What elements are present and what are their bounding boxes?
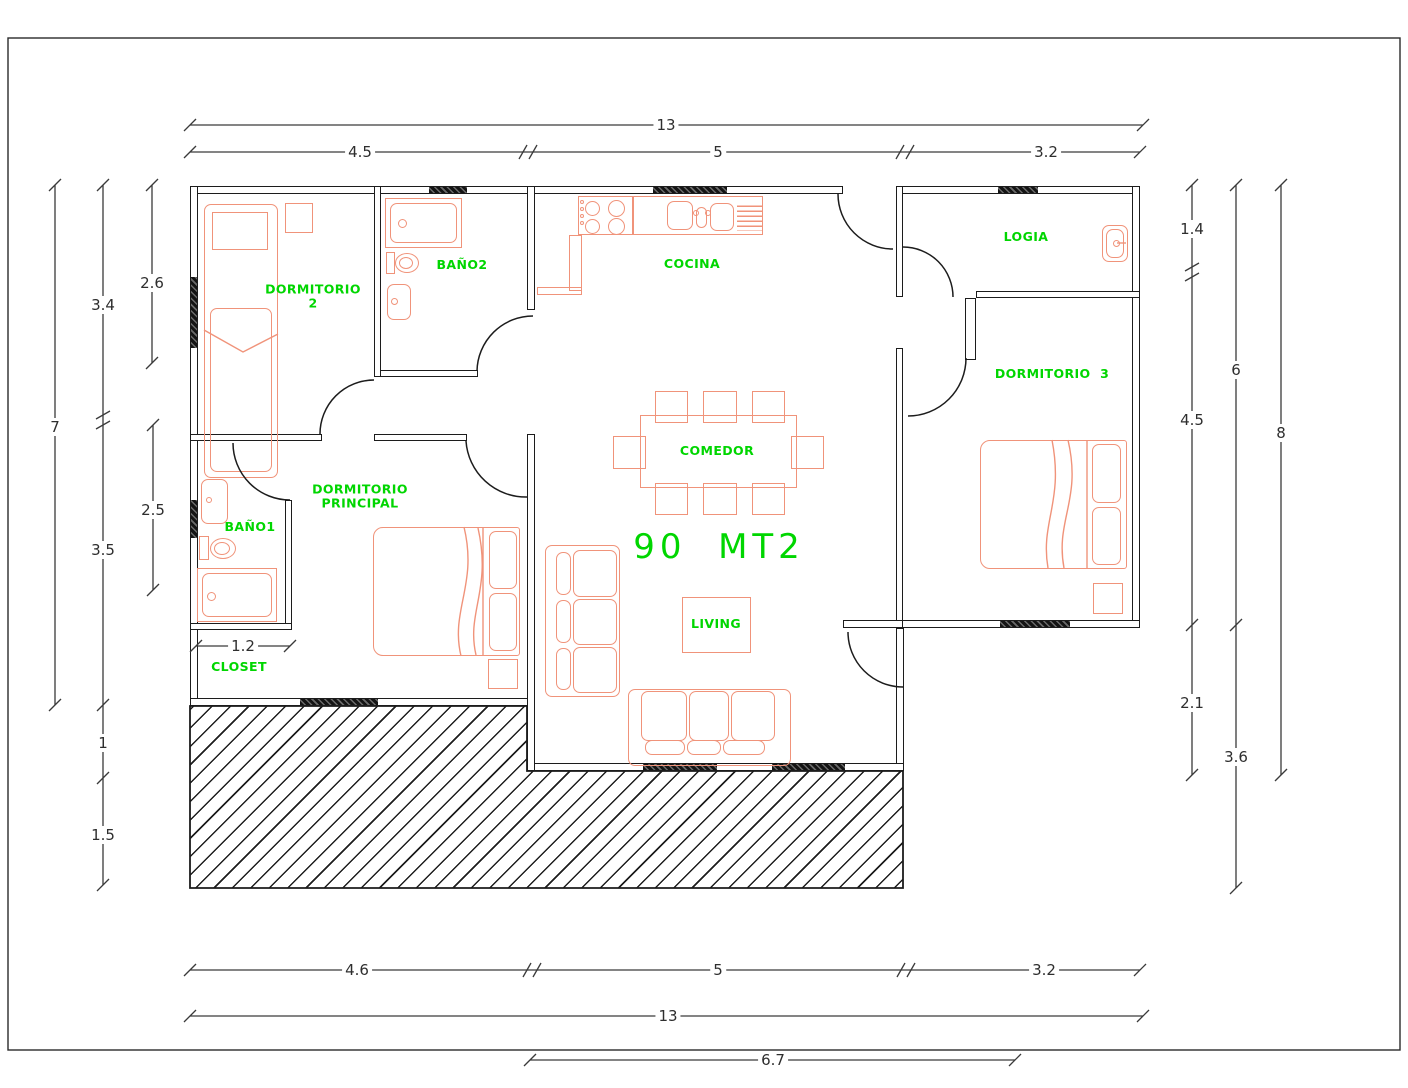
bed-dorm3-pillow-1: [1092, 444, 1121, 503]
heater-logia-knob: [1113, 240, 1120, 247]
dimline-right-inner-break-0a: [1185, 273, 1199, 281]
bed-principal-pillow-2: [489, 593, 517, 651]
dimline-right-inner-tick-2: [1186, 769, 1198, 781]
wall-living-top-stub: [843, 620, 903, 628]
bano1-cabinet-knob: [206, 497, 212, 503]
dormp-line1: DORMITORIO: [312, 482, 408, 497]
dimline-closet-tick-1: [284, 640, 296, 652]
wall-kitchen-left: [527, 186, 535, 310]
dormitorio-2-line1: DORMITORIO: [265, 282, 361, 297]
kitchen-sink-basin-1: [667, 201, 693, 230]
dimline-top-segments-tick-0: [184, 146, 196, 158]
sofa-h-seat-3: [723, 740, 765, 755]
window-top-kitchen: [653, 187, 727, 193]
dining-chair-top-3: [752, 391, 785, 423]
wall-right: [1132, 186, 1140, 628]
dimline-left-segments-break-0b: [96, 411, 110, 419]
dim-bottom-a: 4.6: [342, 961, 372, 979]
dimline-top-segments-break-1a: [896, 145, 904, 159]
dining-chair-bottom-1: [655, 483, 688, 515]
dim-right-c: 2.1: [1177, 694, 1207, 712]
dimline-bottom-segments-break-0a: [523, 963, 531, 977]
dining-chair-top-1: [655, 391, 688, 423]
sofa-v-cushion-3: [573, 647, 617, 693]
dimline-bottom-total-tick-0: [184, 1010, 196, 1022]
dim-bottom-c: 3.2: [1029, 961, 1059, 979]
sofa-v-cushion-1: [573, 550, 617, 597]
dim-right-e: 3.6: [1221, 748, 1251, 766]
dimline-left-total-tick-1: [49, 699, 61, 711]
dim-bottom-porch: 6.7: [758, 1051, 788, 1069]
stove-knob-3: [580, 214, 584, 218]
bed-dorm3-pillow-2: [1092, 507, 1121, 565]
dim-left-e: 2.6: [137, 274, 167, 292]
dimline-left-segments-tick-2: [97, 772, 109, 784]
window-dorm3-bottom: [1000, 621, 1070, 627]
dimline-top-total-tick-1: [1137, 119, 1149, 131]
window-top-logia: [998, 187, 1038, 193]
dimline-top-segments-tick-1: [1134, 146, 1146, 158]
dim-left-f: 2.5: [138, 501, 168, 519]
stove-knob-4: [580, 221, 584, 225]
wall-dorm3-left: [896, 348, 903, 628]
nightstand-dorm2: [285, 203, 313, 233]
nightstand-dorm3: [1093, 583, 1123, 614]
bano1-cabinet: [201, 479, 228, 524]
dim-right-b: 4.5: [1177, 411, 1207, 429]
area-label: 90 MT2: [633, 527, 805, 567]
wall-hall-bottom-mid: [374, 434, 467, 441]
dimline-bottom-porch-tick-0: [524, 1054, 536, 1066]
dining-chair-top-2: [703, 391, 737, 423]
door-arc-bano2: [477, 316, 533, 371]
dimline-bottom-segments-tick-1: [1134, 964, 1146, 976]
dimline-bottom-segments-break-0b: [533, 963, 541, 977]
dim-top-b: 5: [710, 143, 726, 161]
door-arc-dorm2: [320, 380, 374, 434]
bathtub-bano1-drain: [207, 592, 216, 601]
door-arc-living: [848, 632, 903, 687]
dining-chair-left: [613, 436, 646, 469]
sofa-h-seat-2: [687, 740, 721, 755]
sofa-v-pillow-2: [556, 600, 571, 643]
dormitorio-2-line2: 2: [308, 296, 317, 311]
sink-bano2-tap: [391, 298, 398, 305]
floor-plan: DORMITORIO2 BAÑO2 COCINA LOGIA DORMITORI…: [0, 0, 1408, 1088]
dim-bottom-b: 5: [710, 961, 726, 979]
dim-right-a: 1.4: [1177, 220, 1207, 238]
dimline-left-segments-tick-3: [97, 879, 109, 891]
dimline-top-segments-break-1b: [906, 145, 914, 159]
dimline-left-segments-tick-0: [97, 179, 109, 191]
wall-hall-top: [374, 370, 478, 377]
stove-burner-2: [608, 200, 625, 217]
kitchen-sink-tap-2: [705, 210, 711, 216]
nightstand-principal: [488, 659, 518, 689]
dimline-bottom-porch-tick-1: [1009, 1054, 1021, 1066]
wall-living-right: [896, 628, 904, 771]
stove-knob-2: [580, 207, 584, 211]
sofa-h-seat-1: [645, 740, 685, 755]
window-top-hall: [429, 187, 467, 193]
window-left-bano1: [191, 500, 197, 538]
dimline-right-total-tick-0: [1275, 179, 1287, 191]
dimline-left-e-tick-0: [146, 179, 158, 191]
dining-chair-right: [791, 436, 824, 469]
dim-closet-width: 1.2: [228, 637, 258, 655]
kitchen-sink-basin-2: [710, 203, 734, 231]
bed-dorm2-blanket: [210, 308, 272, 472]
stove-burner-4: [608, 218, 625, 235]
stove-burner-1: [585, 201, 600, 216]
dimline-top-segments-break-0a: [519, 145, 527, 159]
dimline-right-inner-break-0b: [1185, 263, 1199, 271]
wall-dormp-living-divider: [527, 434, 535, 771]
dimline-bottom-segments-tick-0: [184, 964, 196, 976]
room-label-living: LIVING: [691, 617, 741, 631]
dimline-top-total-tick-0: [184, 119, 196, 131]
room-label-dormitorio-principal: DORMITORIOPRINCIPAL: [312, 483, 408, 512]
stove-knob-1: [580, 200, 584, 204]
kitchen-counter-strip: [569, 235, 582, 291]
room-label-bano2: BAÑO2: [437, 258, 488, 272]
dimline-right-inner-tick-0: [1186, 179, 1198, 191]
sofa-v-pillow-1: [556, 552, 571, 595]
wall-top-main: [190, 186, 843, 194]
door-arc-entrance: [838, 194, 893, 249]
door-leaf-dorm3: [965, 298, 976, 360]
door-arc-dorm-principal: [466, 441, 527, 497]
bed-principal-pillow-1: [489, 531, 517, 589]
dimline-left-total-tick-0: [49, 179, 61, 191]
room-label-dormitorio-2: DORMITORIO2: [265, 283, 361, 312]
door-arc-dorm3: [908, 358, 966, 416]
dim-right-d: 6: [1228, 361, 1244, 379]
dining-chair-bottom-3: [752, 483, 785, 515]
window-dormp-bottom: [300, 699, 378, 705]
sofa-v-cushion-2: [573, 599, 617, 645]
dimline-right-total-tick-1: [1275, 769, 1287, 781]
wall-bano1-bottom: [190, 623, 292, 630]
bed-dorm2-pillow: [212, 212, 268, 250]
room-label-bano1: BAÑO1: [225, 520, 276, 534]
wall-logia-left: [896, 186, 903, 297]
dimline-top-segments-break-0b: [529, 145, 537, 159]
dimline-left-f-tick-1: [147, 584, 159, 596]
dim-left-d: 1.5: [88, 826, 118, 844]
toilet-bano2-tank: [386, 252, 395, 274]
kitchen-counter-foot: [537, 287, 582, 295]
toilet-bano1-tank: [199, 536, 209, 560]
dimline-right-middle-tick-1: [1230, 619, 1242, 631]
dining-chair-bottom-2: [703, 483, 737, 515]
dimline-right-middle-tick-0: [1230, 179, 1242, 191]
wall-bano1-right: [285, 500, 292, 630]
dim-top-c: 3.2: [1031, 143, 1061, 161]
dimline-bottom-segments-break-1b: [907, 963, 915, 977]
dim-left-total: 7: [47, 418, 63, 436]
room-label-closet: CLOSET: [211, 660, 267, 674]
kitchen-sink-drainboard: [737, 202, 762, 231]
dimline-right-middle-tick-2: [1230, 882, 1242, 894]
room-label-comedor: COMEDOR: [680, 444, 754, 458]
sofa-h-cushion-3: [731, 691, 775, 741]
dim-left-b: 3.5: [88, 541, 118, 559]
room-label-dormitorio-3: DORMITORIO 3: [995, 367, 1109, 381]
toilet-bano2-seat: [399, 257, 413, 269]
dim-top-a: 4.5: [345, 143, 375, 161]
wall-dorm2-bano2: [374, 186, 381, 377]
dimline-left-f-tick-0: [147, 419, 159, 431]
dimline-left-segments-break-0a: [96, 421, 110, 429]
dimline-right-inner-tick-1: [1186, 619, 1198, 631]
stove-burner-3: [585, 219, 600, 234]
dim-top-total: 13: [653, 116, 678, 134]
sofa-h-cushion-1: [641, 691, 687, 741]
room-label-logia: LOGIA: [1004, 230, 1049, 244]
bathtub-bano2-drain: [398, 219, 407, 228]
kitchen-sink-tap-1: [693, 210, 699, 216]
toilet-bano1-seat: [214, 542, 230, 555]
dim-left-a: 3.4: [88, 296, 118, 314]
dim-left-c: 1: [95, 734, 111, 752]
dim-bottom-total: 13: [655, 1007, 680, 1025]
door-arc-logia: [903, 247, 953, 297]
dimline-bottom-segments-break-1a: [897, 963, 905, 977]
sofa-v-pillow-3: [556, 648, 571, 690]
room-label-cocina: COCINA: [664, 257, 720, 271]
window-left-dorm2: [191, 277, 197, 348]
dimline-left-e-tick-1: [146, 357, 158, 369]
wall-logia-bottom: [976, 291, 1140, 298]
dormp-line2: PRINCIPAL: [322, 496, 399, 511]
dim-right-total: 8: [1273, 424, 1289, 442]
dimline-bottom-total-tick-1: [1137, 1010, 1149, 1022]
sofa-h-cushion-2: [689, 691, 729, 741]
dimline-left-segments-tick-1: [97, 699, 109, 711]
